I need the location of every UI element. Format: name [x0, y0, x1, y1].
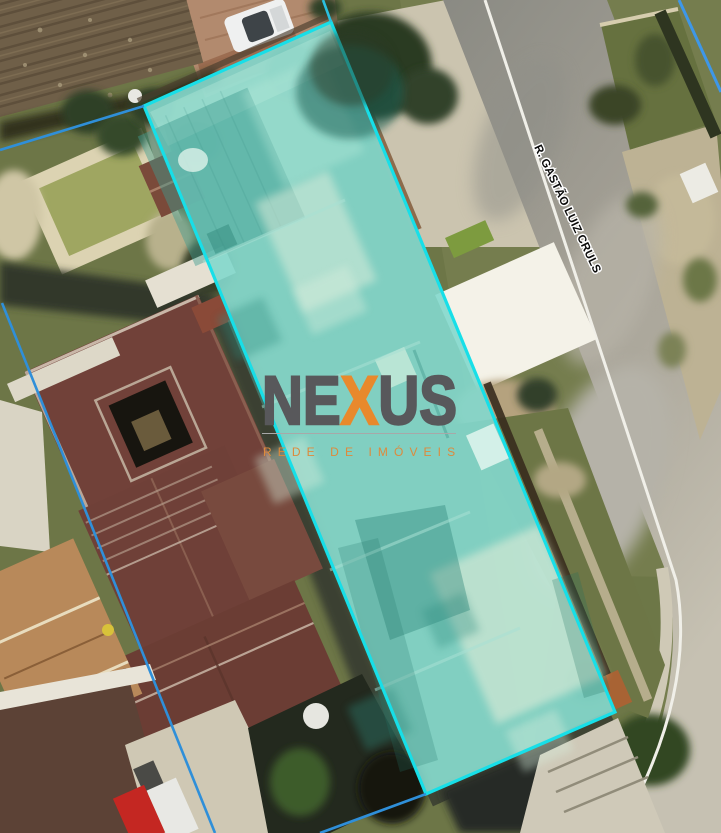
svg-text:REDE DE IMÓVEIS: REDE DE IMÓVEIS	[263, 444, 461, 459]
svg-text:NEXUS: NEXUS	[262, 362, 457, 439]
